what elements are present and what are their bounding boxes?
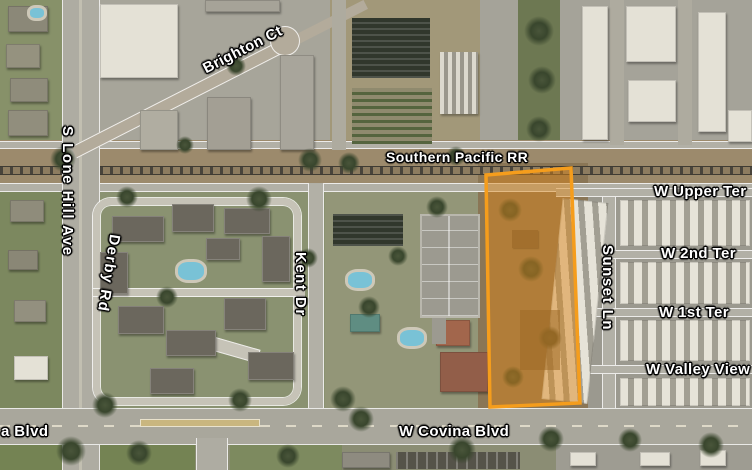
- street-label-w-1st-ter: W 1st Ter: [659, 305, 729, 320]
- street-label-w-upper-ter: W Upper Ter: [654, 184, 746, 199]
- highlighted-parcel[interactable]: [486, 168, 580, 407]
- street-label-w-covina-blvd: W Covina Blvd: [399, 424, 509, 439]
- street-label-sunset-ln: Sunset Ln: [600, 245, 615, 331]
- street-label-southern-pacific-rr: Southern Pacific RR: [386, 150, 528, 164]
- street-label-s-lone-hill-ave: S Lone Hill Ave: [60, 126, 75, 257]
- street-label-w-valley-view: W Valley View: [646, 362, 750, 377]
- street-label-kent-dr: Kent Dr: [293, 252, 308, 317]
- street-label-w-2nd-ter: W 2nd Ter: [661, 246, 736, 261]
- aerial-map-canvas[interactable]: Brighton Ct Southern Pacific RR S Lone H…: [0, 0, 752, 470]
- street-label-a-blvd: a Blvd: [1, 424, 48, 439]
